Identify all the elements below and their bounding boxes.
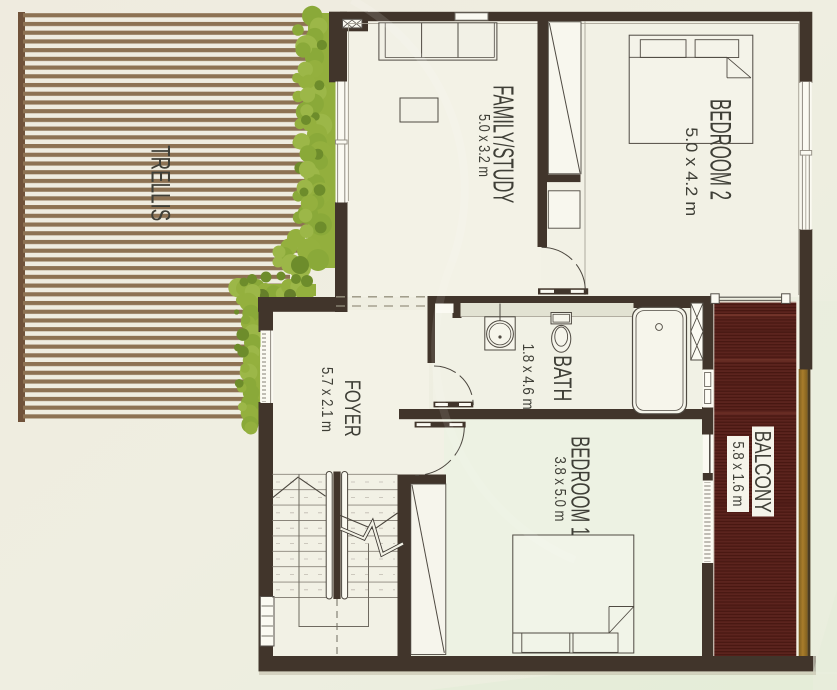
- svg-text:5.0 x 4.2 m: 5.0 x 4.2 m: [682, 127, 700, 216]
- svg-text:5.8 x 1.6 m: 5.8 x 1.6 m: [729, 441, 746, 506]
- svg-text:5.7 x 2.1 m: 5.7 x 2.1 m: [318, 367, 335, 432]
- svg-text:FOYER: FOYER: [340, 380, 365, 437]
- svg-text:TRELLIS: TRELLIS: [146, 145, 176, 221]
- svg-text:3.8 x 5.0 m: 3.8 x 5.0 m: [551, 457, 568, 522]
- svg-text:1.8 x 4.6 m: 1.8 x 4.6 m: [519, 344, 536, 410]
- svg-text:5.0 x 3.2 m: 5.0 x 3.2 m: [475, 114, 492, 177]
- svg-text:BALCONY: BALCONY: [750, 431, 776, 513]
- svg-text:BEDROOM 2: BEDROOM 2: [703, 99, 736, 200]
- svg-text:BATH: BATH: [548, 355, 576, 401]
- svg-text:BEDROOM 1: BEDROOM 1: [565, 436, 595, 536]
